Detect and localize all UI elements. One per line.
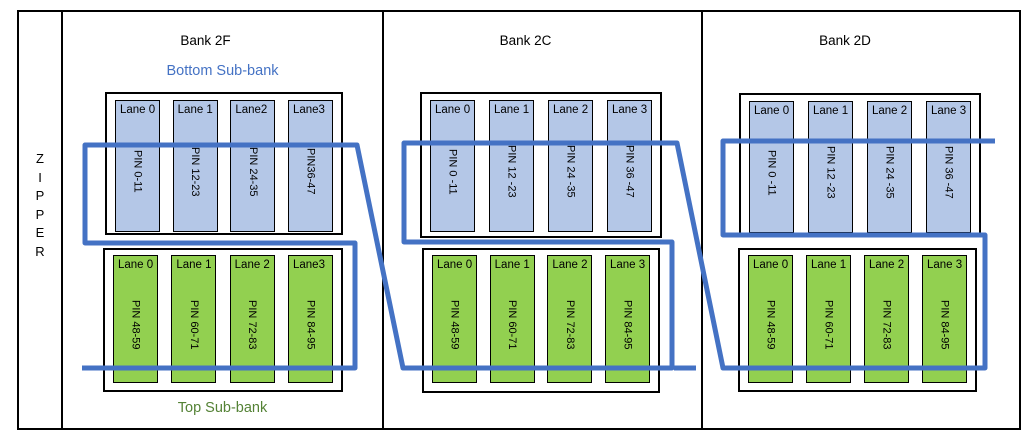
lane-pin-range: PIN 72-83 xyxy=(865,271,908,382)
lane-pin-range: PIN 12 -23 xyxy=(490,116,533,231)
bank-2d-bottom-subbank-box: Lane 0 PIN 0 -11 Lane 1 PIN 12 -23 Lane … xyxy=(739,93,981,235)
lane-pin-range: PIN 84-95 xyxy=(289,271,332,382)
lane-pin-range: PIN 48-59 xyxy=(114,271,157,382)
lane-label: Lane 3 xyxy=(927,102,970,117)
bank-2c-title: Bank 2C xyxy=(384,33,701,48)
zipper-letter: I xyxy=(17,169,63,188)
lane-pin-range: PIN 24 -35 xyxy=(549,116,592,231)
lane-label: Lane 3 xyxy=(923,256,966,271)
lane: Lane 2 PIN 72-83 xyxy=(547,255,592,383)
lane: Lane 3 PIN 84-95 xyxy=(922,255,967,383)
lane-pin-range: PIN 0-11 xyxy=(116,116,159,231)
lane-pin-range: PIN 24 -35 xyxy=(868,117,911,232)
bank-2f-bottom-subbank-box: Lane 0 PIN 0-11 Lane 1 PIN 12-23 Lane2 P… xyxy=(105,92,343,235)
lane-pin-range: PIN 12-23 xyxy=(174,116,217,231)
lane: Lane 2 PIN 72-83 xyxy=(230,255,275,383)
lane: Lane2 PIN 24-35 xyxy=(230,100,275,232)
lane: Lane 1 PIN 12 -23 xyxy=(489,100,534,232)
zipper-bank-diagram: { "diagram": { "zipper": { "letters": ["… xyxy=(0,0,1034,439)
lane-label: Lane 2 xyxy=(549,101,592,116)
lane-pin-range: PIN 48-59 xyxy=(433,271,476,382)
lane-label: Lane 3 xyxy=(608,101,651,116)
zipper-letter: R xyxy=(17,243,63,262)
lane-pin-range: PIN 36 -47 xyxy=(927,117,970,232)
lane-pin-range: PIN 36 -47 xyxy=(608,116,651,231)
bank-2c-bottom-subbank-box: Lane 0 PIN 0 -11 Lane 1 PIN 12 -23 Lane … xyxy=(420,92,662,238)
lane: Lane 0 PIN 48-59 xyxy=(113,255,158,383)
lane: Lane3 PIN 84-95 xyxy=(288,255,333,383)
lane: Lane 1 PIN 12 -23 xyxy=(808,101,853,233)
lane-pin-range: PIN 60-71 xyxy=(491,271,534,382)
bank-divider-2f-2c xyxy=(382,10,384,430)
lane-pin-range: PIN 0 -11 xyxy=(431,116,474,231)
bank-2c-top-subbank-box: Lane 0 PIN 48-59 Lane 1 PIN 60-71 Lane 2… xyxy=(422,248,660,393)
lane-label: Lane 0 xyxy=(431,101,474,116)
lane-label: Lane 2 xyxy=(548,256,591,271)
lane-label: Lane 2 xyxy=(231,256,274,271)
bank-2f-title: Bank 2F xyxy=(63,33,382,48)
lane-pin-range: PIN 84-95 xyxy=(606,271,649,382)
lane-label: Lane 1 xyxy=(809,102,852,117)
lane-label: Lane 1 xyxy=(807,256,850,271)
zipper-letter: P xyxy=(17,206,63,225)
lane-pin-range: PIN36-47 xyxy=(289,116,332,231)
lane-label: Lane 0 xyxy=(750,102,793,117)
lane-label: Lane3 xyxy=(289,101,332,116)
lane-pin-range: PIN 84-95 xyxy=(923,271,966,382)
lane-label: Lane 2 xyxy=(865,256,908,271)
bank-2f-top-subbank-box: Lane 0 PIN 48-59 Lane 1 PIN 60-71 Lane 2… xyxy=(103,248,343,392)
lane-label: Lane 0 xyxy=(114,256,157,271)
lane: Lane 1 PIN 60-71 xyxy=(806,255,851,383)
lane-pin-range: PIN 72-83 xyxy=(231,271,274,382)
lane-pin-range: PIN 24-35 xyxy=(231,116,274,231)
lane-pin-range: PIN 60-71 xyxy=(172,271,215,382)
lane-label: Lane 0 xyxy=(433,256,476,271)
lane-label: Lane 2 xyxy=(868,102,911,117)
lane: Lane 3 PIN 36 -47 xyxy=(926,101,971,233)
lane: Lane 2 PIN 72-83 xyxy=(864,255,909,383)
lane-pin-range: PIN 0 -11 xyxy=(750,117,793,232)
zipper-letter: P xyxy=(17,187,63,206)
lane-label: Lane 1 xyxy=(491,256,534,271)
lane: Lane 0 PIN 0-11 xyxy=(115,100,160,232)
lane-pin-range: PIN 12 -23 xyxy=(809,117,852,232)
bank-2d-top-subbank-box: Lane 0 PIN 48-59 Lane 1 PIN 60-71 Lane 2… xyxy=(738,248,977,392)
lane-label: Lane 1 xyxy=(174,101,217,116)
lane: Lane 0 PIN 0 -11 xyxy=(749,101,794,233)
lane-label: Lane 0 xyxy=(116,101,159,116)
lane-pin-range: PIN 48-59 xyxy=(749,271,792,382)
top-subbank-label: Top Sub-bank xyxy=(63,400,382,416)
lane-label: Lane 0 xyxy=(749,256,792,271)
lane-label: Lane 3 xyxy=(606,256,649,271)
lane-pin-range: PIN 72-83 xyxy=(548,271,591,382)
lane: Lane 1 PIN 60-71 xyxy=(171,255,216,383)
bank-divider-2c-2d xyxy=(701,10,703,430)
lane: Lane 3 PIN 36 -47 xyxy=(607,100,652,232)
zipper-letter: E xyxy=(17,224,63,243)
lane: Lane 0 PIN 48-59 xyxy=(432,255,477,383)
lane-label: Lane 1 xyxy=(490,101,533,116)
lane: Lane 1 PIN 60-71 xyxy=(490,255,535,383)
lane: Lane 0 PIN 48-59 xyxy=(748,255,793,383)
lane: Lane 2 PIN 24 -35 xyxy=(548,100,593,232)
lane: Lane 1 PIN 12-23 xyxy=(173,100,218,232)
lane: Lane 0 PIN 0 -11 xyxy=(430,100,475,232)
lane-pin-range: PIN 60-71 xyxy=(807,271,850,382)
bank-2d-title: Bank 2D xyxy=(703,33,1021,48)
lane-label: Lane 1 xyxy=(172,256,215,271)
lane: Lane 2 PIN 24 -35 xyxy=(867,101,912,233)
lane: Lane 3 PIN 84-95 xyxy=(605,255,650,383)
lane-label: Lane2 xyxy=(231,101,274,116)
zipper-label: Z I P P E R xyxy=(17,150,63,261)
bottom-subbank-label: Bottom Sub-bank xyxy=(63,63,382,79)
lane-label: Lane3 xyxy=(289,256,332,271)
lane: Lane3 PIN36-47 xyxy=(288,100,333,232)
zipper-letter: Z xyxy=(17,150,63,169)
